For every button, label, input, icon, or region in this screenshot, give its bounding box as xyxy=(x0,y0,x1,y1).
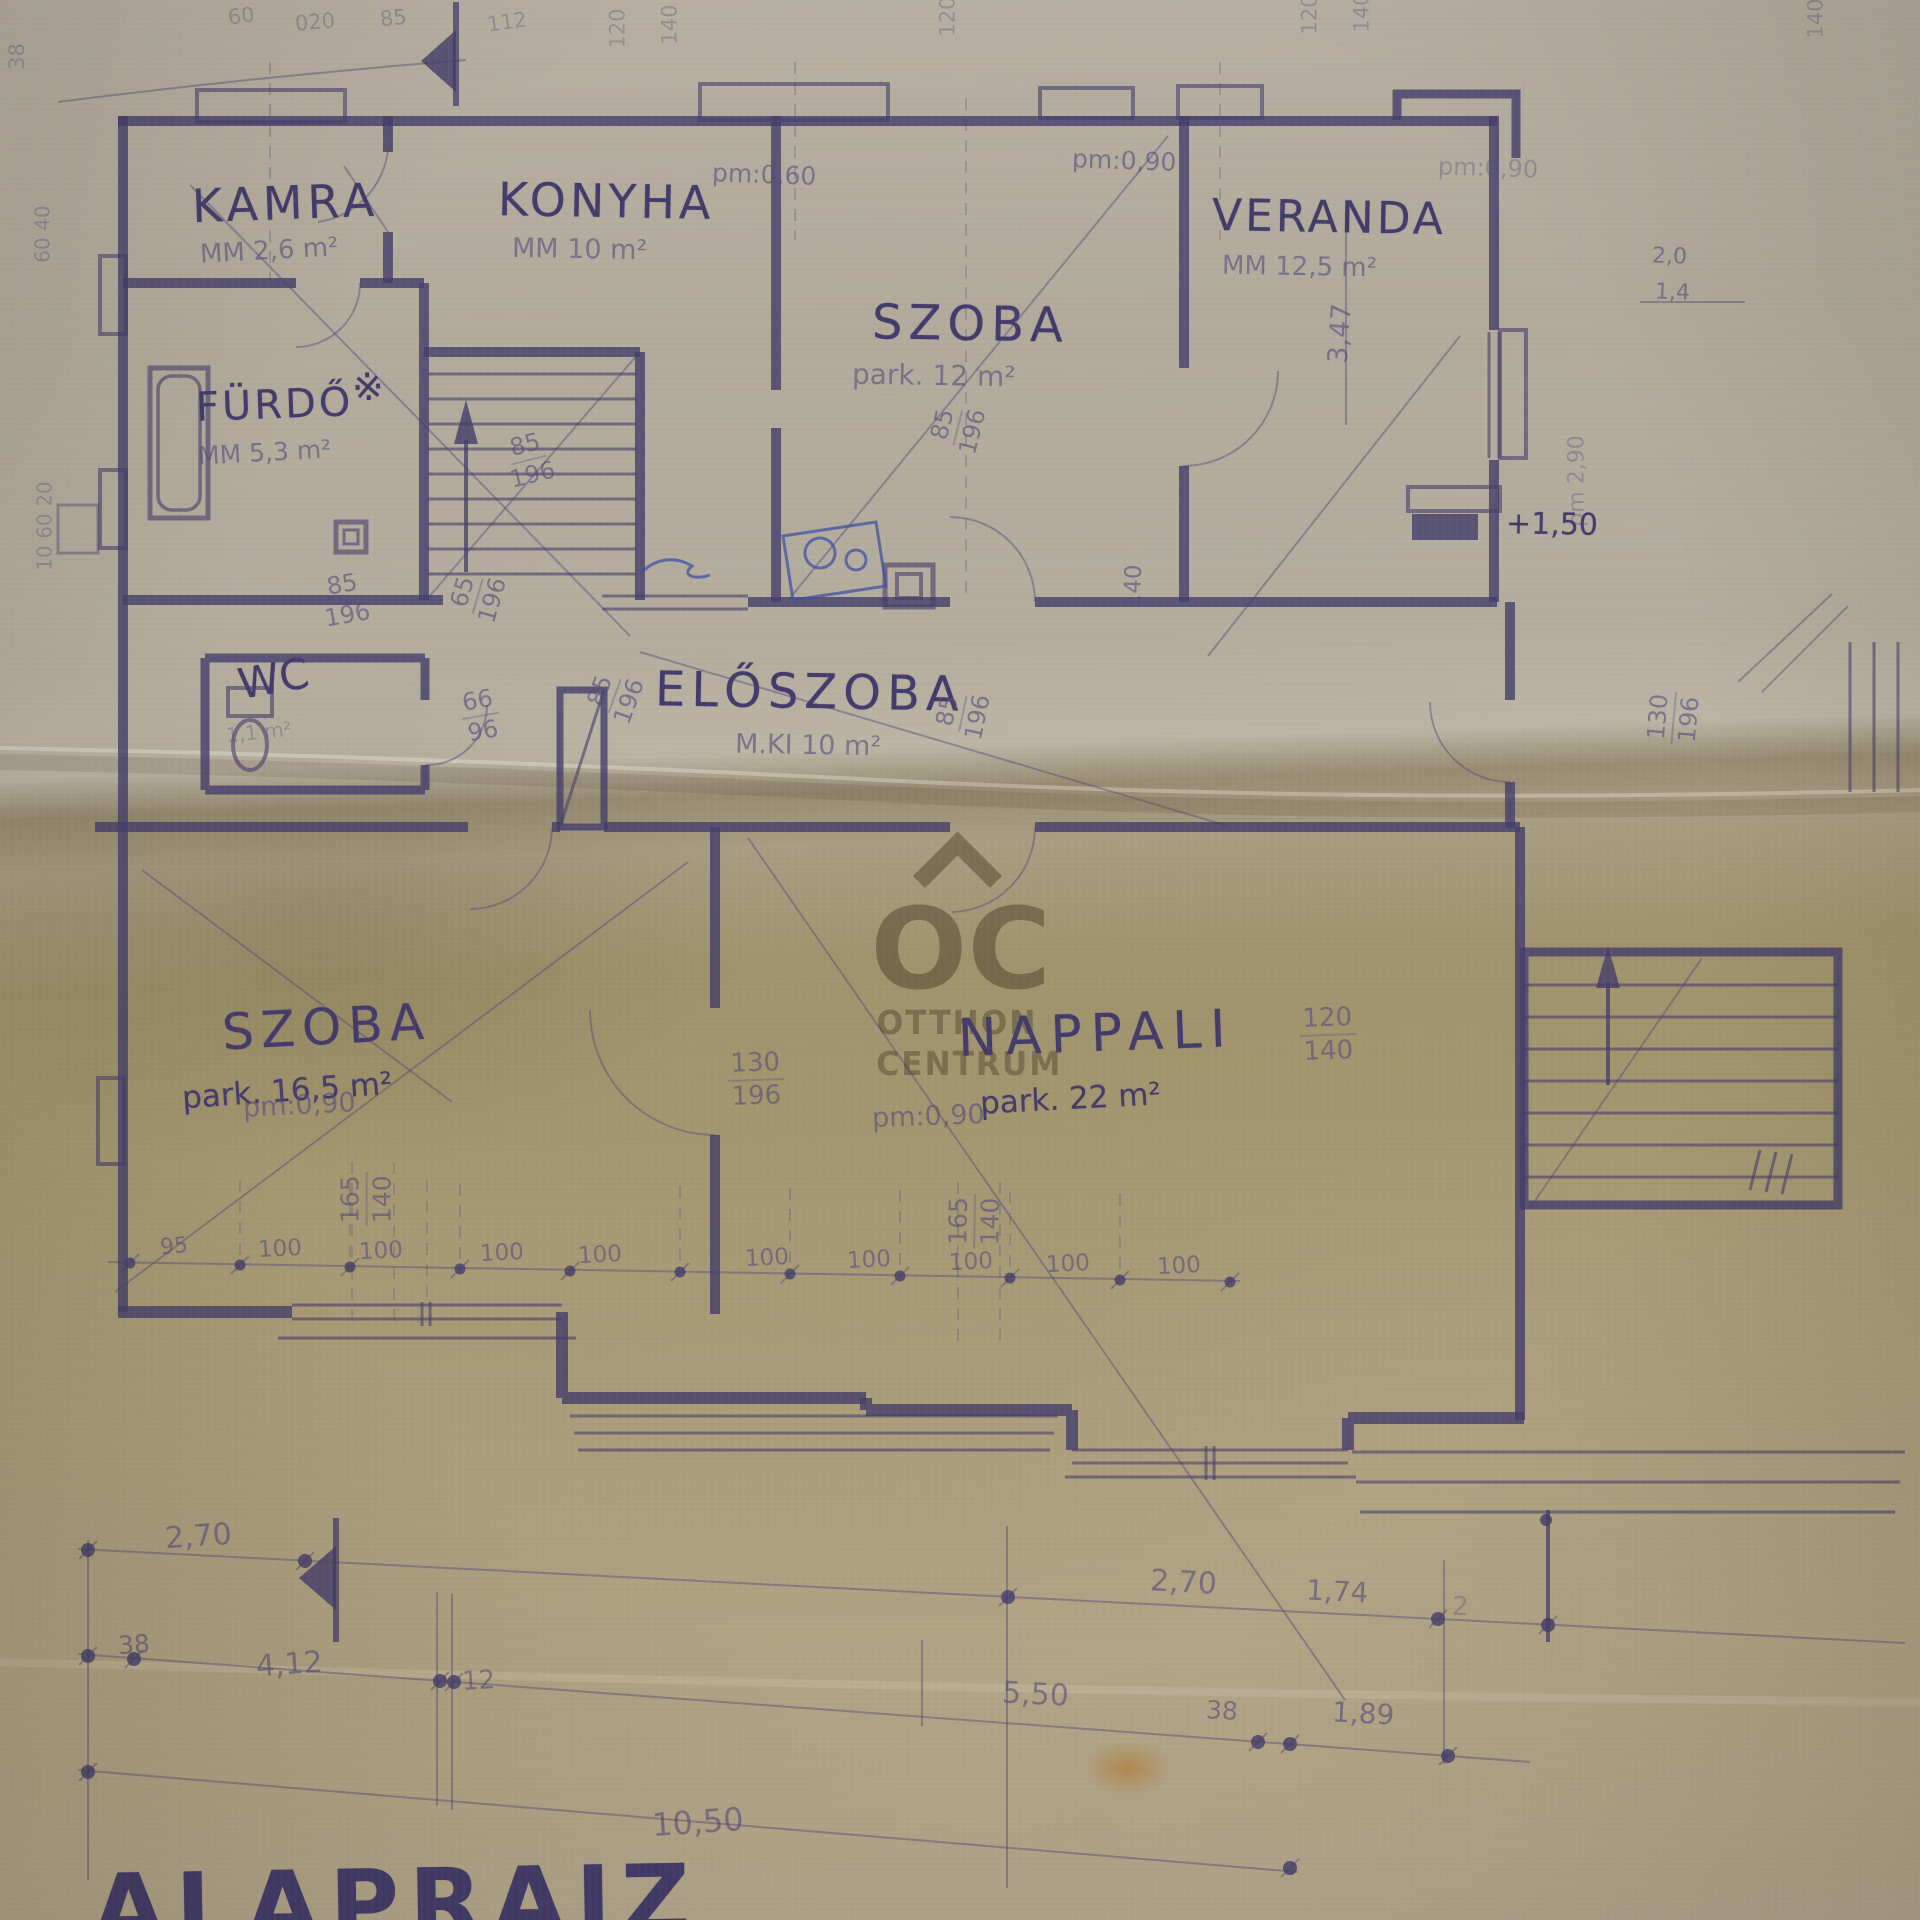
vignette xyxy=(0,0,1920,1920)
paper-stain xyxy=(1085,1742,1169,1794)
floorplan-photo: OC OTTHON CENTRUM KAMRA MM 2,6 m² KONYHA… xyxy=(0,0,1920,1920)
